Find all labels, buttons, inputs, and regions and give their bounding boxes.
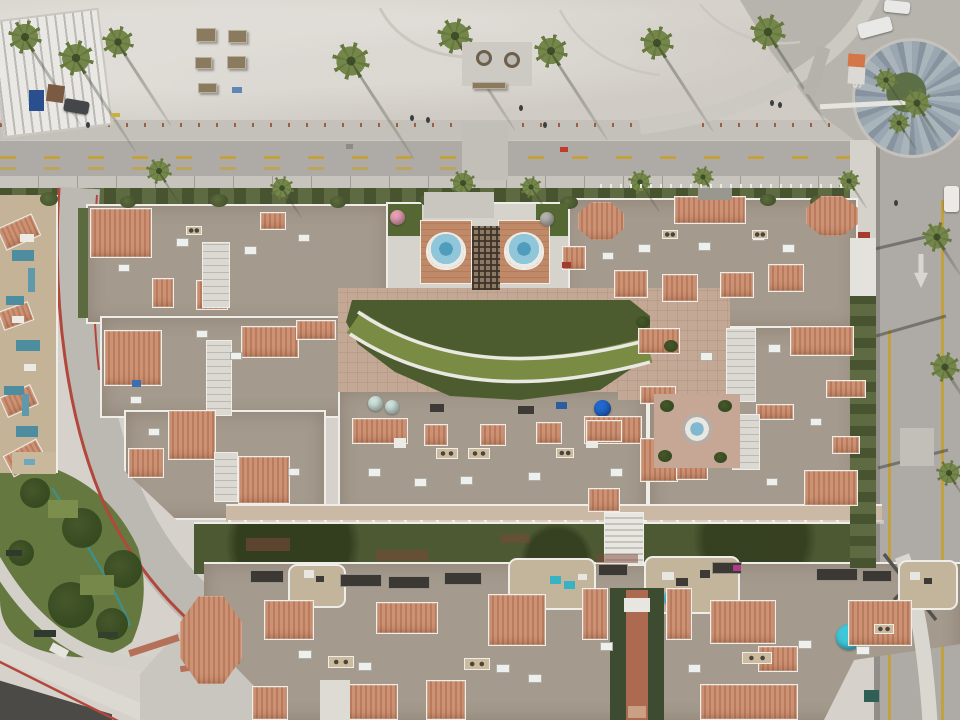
brick-band (128, 634, 180, 657)
terracotta-roof (586, 420, 622, 442)
flower-bed (562, 262, 571, 268)
pergola (472, 226, 500, 290)
island-palm-tree (874, 68, 898, 92)
patio-furniture (518, 406, 534, 414)
teal-balcony (12, 250, 34, 261)
skylight (196, 330, 208, 338)
roof-vent (186, 226, 202, 235)
groundcover-red (596, 554, 638, 563)
terracotta-roof (104, 330, 162, 386)
skylight (176, 238, 189, 247)
patio-furniture (550, 576, 561, 584)
patio-umbrella (385, 400, 399, 414)
magenta-item (733, 565, 741, 571)
hedge-bush (664, 340, 678, 352)
roof-vent (464, 658, 490, 670)
hedge-palm-tree (520, 176, 542, 198)
person (543, 122, 547, 128)
person (778, 102, 782, 108)
teal-balcony (4, 386, 24, 395)
skylight (460, 476, 473, 485)
courtyard (202, 242, 230, 308)
skylight (602, 252, 614, 260)
roof-vent (436, 448, 458, 459)
roof-vent (662, 230, 678, 239)
terracotta-roof (238, 456, 290, 504)
skylight (298, 650, 312, 659)
road-arrow (914, 254, 928, 288)
courtyard-gap (320, 680, 350, 720)
hedge-palm-tree (628, 170, 652, 194)
terracotta-roof (578, 202, 624, 240)
terracotta-roof (260, 212, 286, 230)
beach-palm-tree (8, 20, 42, 54)
patio-furniture (910, 572, 920, 580)
terracotta-roof (0, 213, 41, 250)
bush (760, 194, 776, 206)
grass-patch (80, 575, 114, 595)
grass-patch (48, 500, 78, 518)
solar-panel (598, 564, 628, 576)
picnic-table (227, 56, 246, 69)
skylight (496, 664, 510, 673)
terracotta-roof (252, 686, 288, 720)
terracotta-roof (168, 410, 216, 460)
skylight (130, 396, 142, 404)
scalloped-fountain (506, 234, 542, 268)
street-palm-tree (936, 460, 960, 486)
skylight (230, 352, 242, 360)
picnic-table (228, 30, 247, 43)
patio-furniture (556, 402, 567, 409)
rect (12, 316, 24, 323)
person (894, 200, 898, 206)
person (86, 122, 90, 128)
aerial-photograph: STOP (0, 0, 960, 720)
skylight (782, 244, 795, 253)
person (770, 100, 774, 106)
terracotta-roof (720, 272, 754, 298)
skylight (638, 244, 651, 253)
skylight (528, 472, 541, 481)
scene-objects (0, 0, 960, 720)
fire-pit (504, 52, 520, 68)
skylight (698, 242, 711, 251)
roof-vent (742, 652, 772, 664)
beach-canopy (232, 87, 242, 93)
patio-furniture (316, 576, 324, 582)
skylight (810, 418, 822, 426)
courtyard-fountain (628, 706, 646, 718)
kiosk (46, 84, 65, 103)
skylight (118, 264, 130, 272)
island-palm-tree (902, 88, 932, 118)
beach-bench (472, 82, 506, 89)
skylight (688, 664, 701, 673)
terracotta-roof (790, 326, 854, 356)
patio-furniture (304, 570, 314, 578)
skylight (298, 234, 310, 242)
courtyard (726, 328, 756, 402)
beach-palm-tree (534, 34, 568, 68)
white-car (883, 0, 910, 14)
solar-panel (444, 572, 482, 585)
picnic-table (195, 57, 212, 69)
solar-panel (250, 570, 284, 583)
balcony (624, 598, 650, 612)
terracotta-roof (424, 424, 448, 446)
scalloped-fountain (428, 234, 464, 268)
patio-umbrella (368, 396, 383, 411)
fire-pit-pad (462, 42, 532, 86)
truck-cab (848, 53, 866, 67)
beach-palm-tree (58, 40, 94, 76)
teal-balcony (16, 340, 40, 351)
street-palm-tree (930, 352, 960, 382)
round-fountain (682, 414, 712, 444)
stairway (28, 268, 35, 292)
fire-pit (476, 50, 492, 66)
terracotta-roof (426, 680, 466, 720)
patio-furniture (430, 404, 444, 412)
skylight (244, 246, 257, 255)
entry-walk (424, 192, 494, 218)
terracotta-roof (662, 274, 698, 302)
manhole (346, 144, 353, 149)
hedge-palm-tree (270, 176, 294, 200)
gray-umbrella (540, 212, 554, 226)
skylight (414, 478, 427, 487)
white-car (944, 186, 959, 212)
person (519, 105, 523, 111)
park-bench (98, 632, 118, 638)
terracotta-roof (128, 448, 164, 478)
terracotta-roof (488, 594, 546, 646)
skylight (368, 468, 381, 477)
bush (40, 192, 58, 206)
street-palm-tree (922, 222, 952, 252)
terracotta-roof (152, 278, 174, 308)
terracotta-roof (700, 684, 798, 720)
hedge-bush (660, 400, 674, 412)
chimney-cap (394, 438, 406, 448)
teal-balcony (6, 296, 24, 305)
terracotta-roof (756, 404, 794, 420)
solar-panel (816, 568, 858, 581)
patio-furniture (676, 578, 688, 586)
terracotta-roof (346, 684, 398, 720)
courtyard (214, 452, 238, 502)
beach-palm-tree (332, 42, 370, 80)
hedge-palm-tree (838, 170, 860, 192)
skylight (528, 674, 542, 683)
solar-panel (862, 570, 892, 582)
patio-furniture (578, 574, 587, 580)
terracotta-roof (848, 600, 912, 646)
cyclist (560, 147, 568, 152)
kayak (111, 113, 120, 117)
hedge-bush (636, 316, 650, 328)
roof-vent (556, 448, 574, 458)
picnic-table (198, 83, 217, 93)
beach-palm-tree (640, 26, 674, 60)
skylight (766, 478, 778, 486)
parked-car (63, 98, 90, 115)
skylight (798, 640, 812, 649)
building-sign (29, 90, 44, 111)
terracotta-roof (536, 422, 562, 444)
white-car (857, 16, 894, 39)
terracotta-roof (674, 196, 746, 224)
groundcover-red (376, 550, 428, 561)
park-bench (6, 550, 22, 556)
patio-furniture (662, 572, 674, 580)
terracotta-roof (296, 320, 336, 340)
corner-walk (850, 238, 876, 296)
terracotta-roof (710, 600, 776, 644)
solar-panel (388, 576, 430, 589)
island-palm-tree (888, 112, 910, 134)
hedge-bush (658, 450, 672, 462)
terracotta-roof (582, 588, 608, 640)
person (426, 117, 430, 123)
skylight (610, 468, 623, 477)
park-bench (34, 630, 56, 637)
stairway (22, 394, 29, 416)
terracotta-roof (180, 596, 242, 684)
skylight (700, 352, 713, 361)
gate-structure (698, 188, 732, 200)
dumpster (864, 690, 879, 702)
hedge-bush (714, 452, 727, 463)
picnic-table (196, 28, 216, 42)
solar-panel (340, 574, 382, 587)
courtyard (206, 340, 232, 416)
blue-tarp (132, 380, 141, 387)
skylight (856, 646, 870, 655)
skylight (288, 468, 300, 476)
street-hedge (78, 208, 88, 318)
beach-palm-tree (102, 26, 134, 58)
terracotta-roof (588, 488, 620, 512)
bush (120, 196, 136, 208)
roof-vent (874, 624, 894, 634)
terracotta-roof (768, 264, 804, 292)
blue-umbrella (594, 400, 611, 417)
skylight (358, 662, 372, 671)
road-patch (900, 428, 934, 466)
terracotta-roof (241, 326, 299, 358)
terracotta-roof (90, 208, 152, 258)
terracotta-roof (264, 600, 314, 640)
patio-furniture (564, 581, 575, 589)
groundcover-red (500, 534, 530, 543)
terracotta-roof (376, 602, 438, 634)
rect (20, 234, 34, 242)
rect (24, 364, 36, 371)
park-tree (20, 478, 50, 508)
curved-bench (49, 642, 69, 658)
terracotta-roof (832, 436, 860, 454)
skylight (600, 642, 613, 651)
patio-furniture (700, 570, 710, 578)
person (410, 115, 414, 121)
beach-palm-tree (750, 14, 786, 50)
skylight (148, 428, 160, 436)
groundcover-red (246, 538, 290, 551)
skylight (768, 344, 781, 353)
terracotta-roof (826, 380, 866, 398)
pink-umbrella (390, 210, 405, 225)
truck-bed (847, 66, 865, 84)
ramp-wall (803, 45, 831, 97)
roof-vent (328, 656, 354, 668)
patio-furniture (924, 578, 932, 584)
pool (24, 459, 35, 465)
roof-vent (752, 230, 768, 239)
hedge-bush (718, 400, 732, 412)
bush (210, 194, 228, 207)
roof-vent (468, 448, 490, 459)
terracotta-roof (666, 588, 692, 640)
terracotta-roof (804, 470, 858, 506)
teal-balcony (16, 426, 38, 437)
terracotta-roof (480, 424, 506, 446)
terracotta-roof (614, 270, 648, 298)
hedge-palm-tree (146, 158, 172, 184)
bush (330, 196, 346, 208)
